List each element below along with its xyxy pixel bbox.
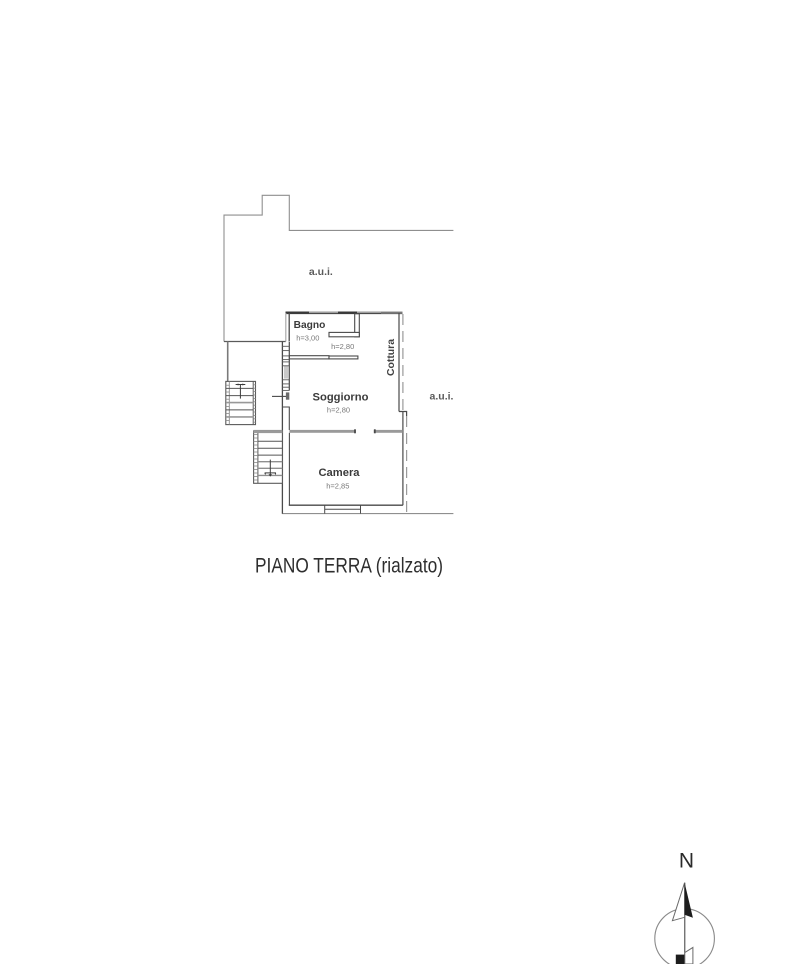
svg-text:Bagno: Bagno: [294, 320, 326, 331]
svg-text:Cottura: Cottura: [386, 339, 397, 376]
svg-text:h=2,80: h=2,80: [327, 405, 350, 414]
svg-text:a.u.i.: a.u.i.: [430, 391, 454, 403]
svg-text:h=2,85: h=2,85: [326, 481, 349, 490]
svg-text:Camera: Camera: [318, 467, 360, 479]
svg-text:Soggiorno: Soggiorno: [313, 391, 369, 403]
svg-text:PIANO TERRA (rialzato): PIANO TERRA (rialzato): [255, 554, 443, 577]
svg-text:h=2,80: h=2,80: [331, 342, 354, 351]
svg-text:N: N: [679, 850, 694, 873]
svg-text:h=3,00: h=3,00: [296, 333, 319, 342]
svg-text:a.u.i.: a.u.i.: [309, 266, 333, 278]
